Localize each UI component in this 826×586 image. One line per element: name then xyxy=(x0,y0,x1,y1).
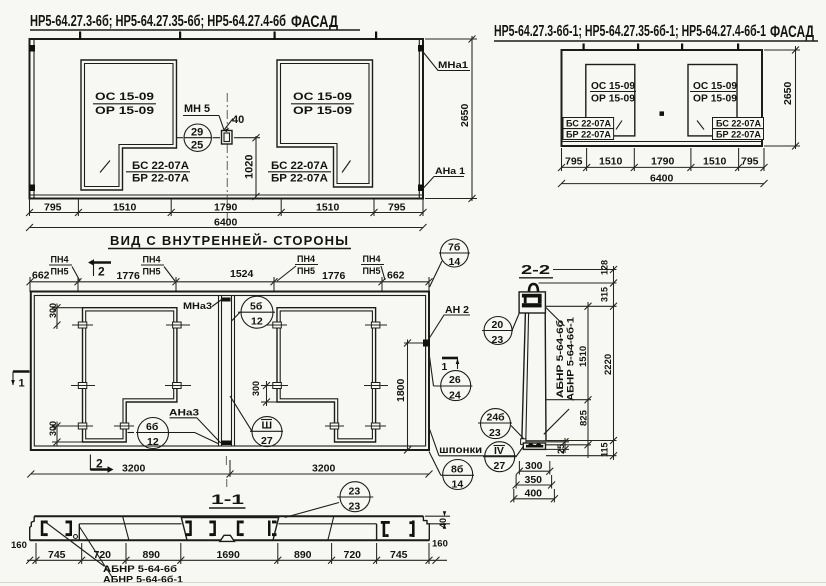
svg-text:ОР 15-09: ОР 15-09 xyxy=(95,105,154,117)
svg-text:23: 23 xyxy=(492,334,504,346)
svg-text:890: 890 xyxy=(294,549,312,561)
svg-text:БС 22-07А: БС 22-07А xyxy=(716,119,761,130)
svg-text:1510: 1510 xyxy=(578,346,589,367)
svg-text:1-1: 1-1 xyxy=(211,491,244,507)
svg-text:400: 400 xyxy=(525,488,543,500)
svg-text:1790: 1790 xyxy=(651,156,675,168)
svg-text:НР5-64.27.3-6б; НР5-64.27.35-6: НР5-64.27.3-6б; НР5-64.27.35-6б; НР5-64.… xyxy=(30,13,286,30)
svg-text:7б: 7б xyxy=(448,242,461,254)
svg-text:IV: IV xyxy=(494,445,504,457)
svg-text:115: 115 xyxy=(600,442,610,457)
svg-text:160: 160 xyxy=(432,539,448,550)
svg-text:720: 720 xyxy=(94,549,112,561)
svg-text:ФАСАД: ФАСАД xyxy=(770,22,814,41)
svg-text:6400: 6400 xyxy=(650,173,674,185)
svg-text:1776: 1776 xyxy=(322,270,346,282)
svg-text:745: 745 xyxy=(390,549,408,561)
svg-text:300: 300 xyxy=(48,303,58,318)
svg-text:1510: 1510 xyxy=(599,156,623,168)
svg-text:24: 24 xyxy=(449,390,461,402)
svg-text:6б: 6б xyxy=(146,421,159,433)
svg-text:1800: 1800 xyxy=(395,378,407,402)
svg-text:АНа 1: АНа 1 xyxy=(435,166,466,177)
svg-text:26: 26 xyxy=(449,374,461,386)
svg-text:6400: 6400 xyxy=(214,217,238,229)
svg-text:АБНР 5-64-6б-1: АБНР 5-64-6б-1 xyxy=(566,316,577,401)
svg-text:ФАСАД: ФАСАД xyxy=(291,12,338,31)
svg-text:АБНР 5-64-6б-1: АБНР 5-64-6б-1 xyxy=(103,575,184,586)
svg-text:БР 22-07А: БР 22-07А xyxy=(132,173,189,185)
svg-text:12: 12 xyxy=(147,436,159,448)
svg-text:25: 25 xyxy=(191,140,203,152)
svg-text:БС 22-07А: БС 22-07А xyxy=(271,160,328,172)
svg-text:2650: 2650 xyxy=(782,81,794,105)
svg-text:2650: 2650 xyxy=(459,103,471,127)
svg-text:23: 23 xyxy=(349,486,361,498)
svg-text:МНа3: МНа3 xyxy=(183,301,212,312)
svg-text:825: 825 xyxy=(579,409,590,426)
svg-text:МН 5: МН 5 xyxy=(184,103,210,115)
svg-text:ПН4: ПН4 xyxy=(51,255,69,265)
svg-text:24б: 24б xyxy=(487,412,506,424)
svg-text:3200: 3200 xyxy=(312,463,336,475)
svg-text:1510: 1510 xyxy=(113,202,137,214)
svg-text:23: 23 xyxy=(349,501,361,513)
svg-text:8б: 8б xyxy=(451,464,464,476)
svg-text:АНа3: АНа3 xyxy=(169,408,199,419)
svg-text:БР 22-07А: БР 22-07А xyxy=(716,130,761,141)
svg-text:ПН5: ПН5 xyxy=(297,266,315,276)
svg-text:27: 27 xyxy=(494,460,506,472)
svg-text:ОР 15-09: ОР 15-09 xyxy=(591,93,635,105)
svg-text:1510: 1510 xyxy=(316,202,340,214)
svg-text:2-2: 2-2 xyxy=(521,262,550,277)
svg-text:300: 300 xyxy=(251,381,261,396)
svg-text:БР 22-07А: БР 22-07А xyxy=(271,173,328,185)
svg-text:1790: 1790 xyxy=(214,202,238,214)
svg-text:Ш: Ш xyxy=(262,420,273,432)
svg-text:662: 662 xyxy=(32,270,50,282)
svg-text:ПН4: ПН4 xyxy=(363,254,381,264)
svg-text:БР 22-07А: БР 22-07А xyxy=(566,130,611,141)
svg-text:1776: 1776 xyxy=(117,270,141,282)
svg-text:1524: 1524 xyxy=(230,268,254,280)
svg-text:ПН5: ПН5 xyxy=(363,266,381,276)
svg-text:ПН5: ПН5 xyxy=(51,267,69,277)
svg-text:ОС 15-09: ОС 15-09 xyxy=(591,80,635,92)
svg-text:662: 662 xyxy=(387,270,405,282)
svg-text:27: 27 xyxy=(261,435,273,447)
svg-text:МНа1: МНа1 xyxy=(438,60,469,71)
svg-text:350: 350 xyxy=(525,474,543,486)
svg-text:ВИД С ВНУТРЕННЕЙ- СТОРОНЫ: ВИД С ВНУТРЕННЕЙ- СТОРОНЫ xyxy=(110,233,349,248)
svg-text:795: 795 xyxy=(44,202,62,214)
svg-text:2: 2 xyxy=(98,265,105,279)
svg-text:745: 745 xyxy=(48,549,66,561)
svg-text:14: 14 xyxy=(452,479,464,491)
svg-text:АБНР 5-64-6б: АБНР 5-64-6б xyxy=(555,320,566,398)
svg-text:300: 300 xyxy=(48,421,58,436)
svg-text:40: 40 xyxy=(438,518,448,528)
svg-text:шпонки: шпонки xyxy=(439,444,482,456)
svg-text:890: 890 xyxy=(143,549,161,561)
svg-text:20: 20 xyxy=(492,319,504,331)
svg-text:29: 29 xyxy=(191,127,203,139)
svg-text:ПН4: ПН4 xyxy=(143,255,161,265)
svg-text:1: 1 xyxy=(442,361,448,373)
svg-text:АН 2: АН 2 xyxy=(445,304,469,316)
svg-text:315: 315 xyxy=(600,287,610,302)
svg-text:ОР 15-09: ОР 15-09 xyxy=(293,105,352,117)
svg-text:ОР 15-09: ОР 15-09 xyxy=(693,93,737,105)
svg-text:БС 22-07А: БС 22-07А xyxy=(132,160,189,172)
svg-text:1020: 1020 xyxy=(244,155,256,179)
svg-text:14: 14 xyxy=(449,256,461,268)
svg-text:40: 40 xyxy=(232,114,244,126)
svg-text:2: 2 xyxy=(96,457,103,471)
svg-text:3200: 3200 xyxy=(122,463,146,475)
svg-text:720: 720 xyxy=(344,549,362,561)
svg-text:1690: 1690 xyxy=(217,549,241,561)
svg-text:2220: 2220 xyxy=(603,354,614,375)
svg-text:ОС 15-09: ОС 15-09 xyxy=(95,91,154,103)
svg-text:АБНР 5-64-6б: АБНР 5-64-6б xyxy=(103,564,177,575)
svg-text:25: 25 xyxy=(556,444,566,454)
svg-text:12: 12 xyxy=(251,316,263,328)
svg-text:5б: 5б xyxy=(250,301,263,313)
svg-text:795: 795 xyxy=(741,156,759,168)
svg-text:795: 795 xyxy=(565,156,583,168)
svg-text:160: 160 xyxy=(11,540,27,551)
svg-text:БС 22-07А: БС 22-07А xyxy=(566,119,611,130)
svg-text:ПН5: ПН5 xyxy=(143,267,161,277)
svg-text:ОС 15-09: ОС 15-09 xyxy=(293,91,352,103)
svg-text:НР5-64.27.3-6б-1; НР5-64.27.35: НР5-64.27.3-6б-1; НР5-64.27.35-6б-1; НР5… xyxy=(494,23,766,40)
svg-text:1: 1 xyxy=(19,378,25,390)
svg-text:1510: 1510 xyxy=(703,156,727,168)
svg-text:128: 128 xyxy=(600,260,610,275)
svg-text:300: 300 xyxy=(525,460,543,472)
svg-text:ОС 15-09: ОС 15-09 xyxy=(693,80,737,92)
svg-text:23: 23 xyxy=(489,427,501,439)
svg-text:ПН4: ПН4 xyxy=(297,254,315,264)
svg-text:795: 795 xyxy=(388,202,406,214)
